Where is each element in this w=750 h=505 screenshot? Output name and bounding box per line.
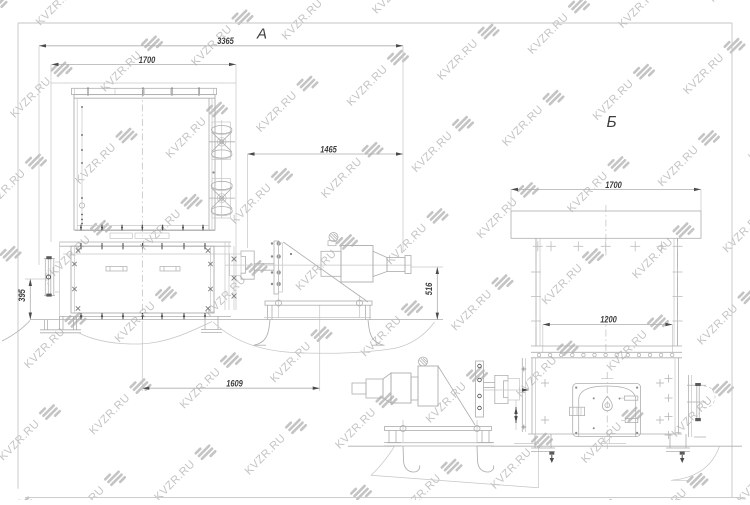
svg-text:516: 516: [424, 283, 434, 296]
svg-text:1609: 1609: [226, 378, 243, 388]
svg-text:Б: Б: [606, 114, 616, 131]
svg-text:3365: 3365: [217, 36, 234, 46]
svg-text:1200: 1200: [600, 315, 617, 325]
svg-text:1700: 1700: [139, 55, 156, 65]
svg-text:1465: 1465: [320, 144, 337, 154]
svg-text:А: А: [256, 26, 267, 43]
svg-text:395: 395: [17, 289, 27, 302]
svg-text:1700: 1700: [605, 180, 622, 190]
